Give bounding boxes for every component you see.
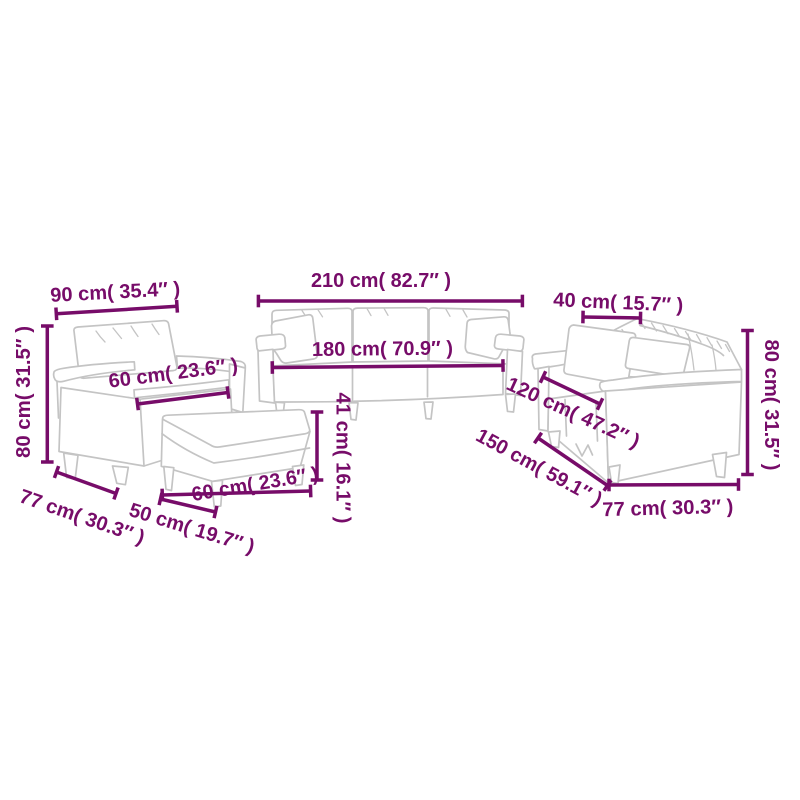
svg-text:80 cm( 31.5″ ): 80 cm( 31.5″ ) (13, 326, 35, 458)
svg-text:180 cm( 70.9″ ): 180 cm( 70.9″ ) (312, 338, 453, 361)
svg-text:90 cm( 35.4″ ): 90 cm( 35.4″ ) (50, 278, 181, 307)
svg-text:80 cm( 31.5″ ): 80 cm( 31.5″ ) (760, 340, 782, 471)
svg-text:77 cm( 30.3″ ): 77 cm( 30.3″ ) (602, 496, 734, 521)
svg-text:40 cm( 15.7″ ): 40 cm( 15.7″ ) (553, 289, 684, 317)
svg-text:41 cm( 16.1″ ): 41 cm( 16.1″ ) (332, 393, 354, 524)
svg-text:210 cm( 82.7″ ): 210 cm( 82.7″ ) (311, 270, 451, 292)
